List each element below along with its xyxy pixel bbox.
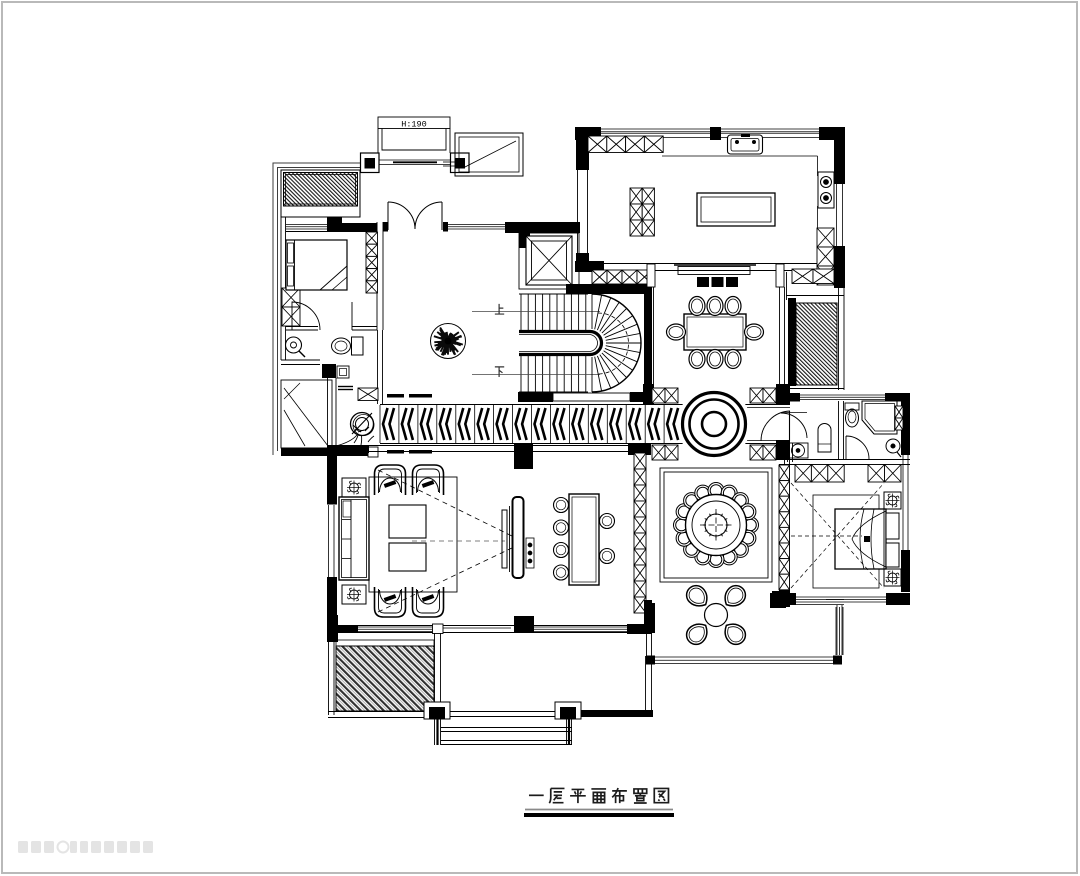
svg-text:H:190: H:190 [401,120,427,130]
